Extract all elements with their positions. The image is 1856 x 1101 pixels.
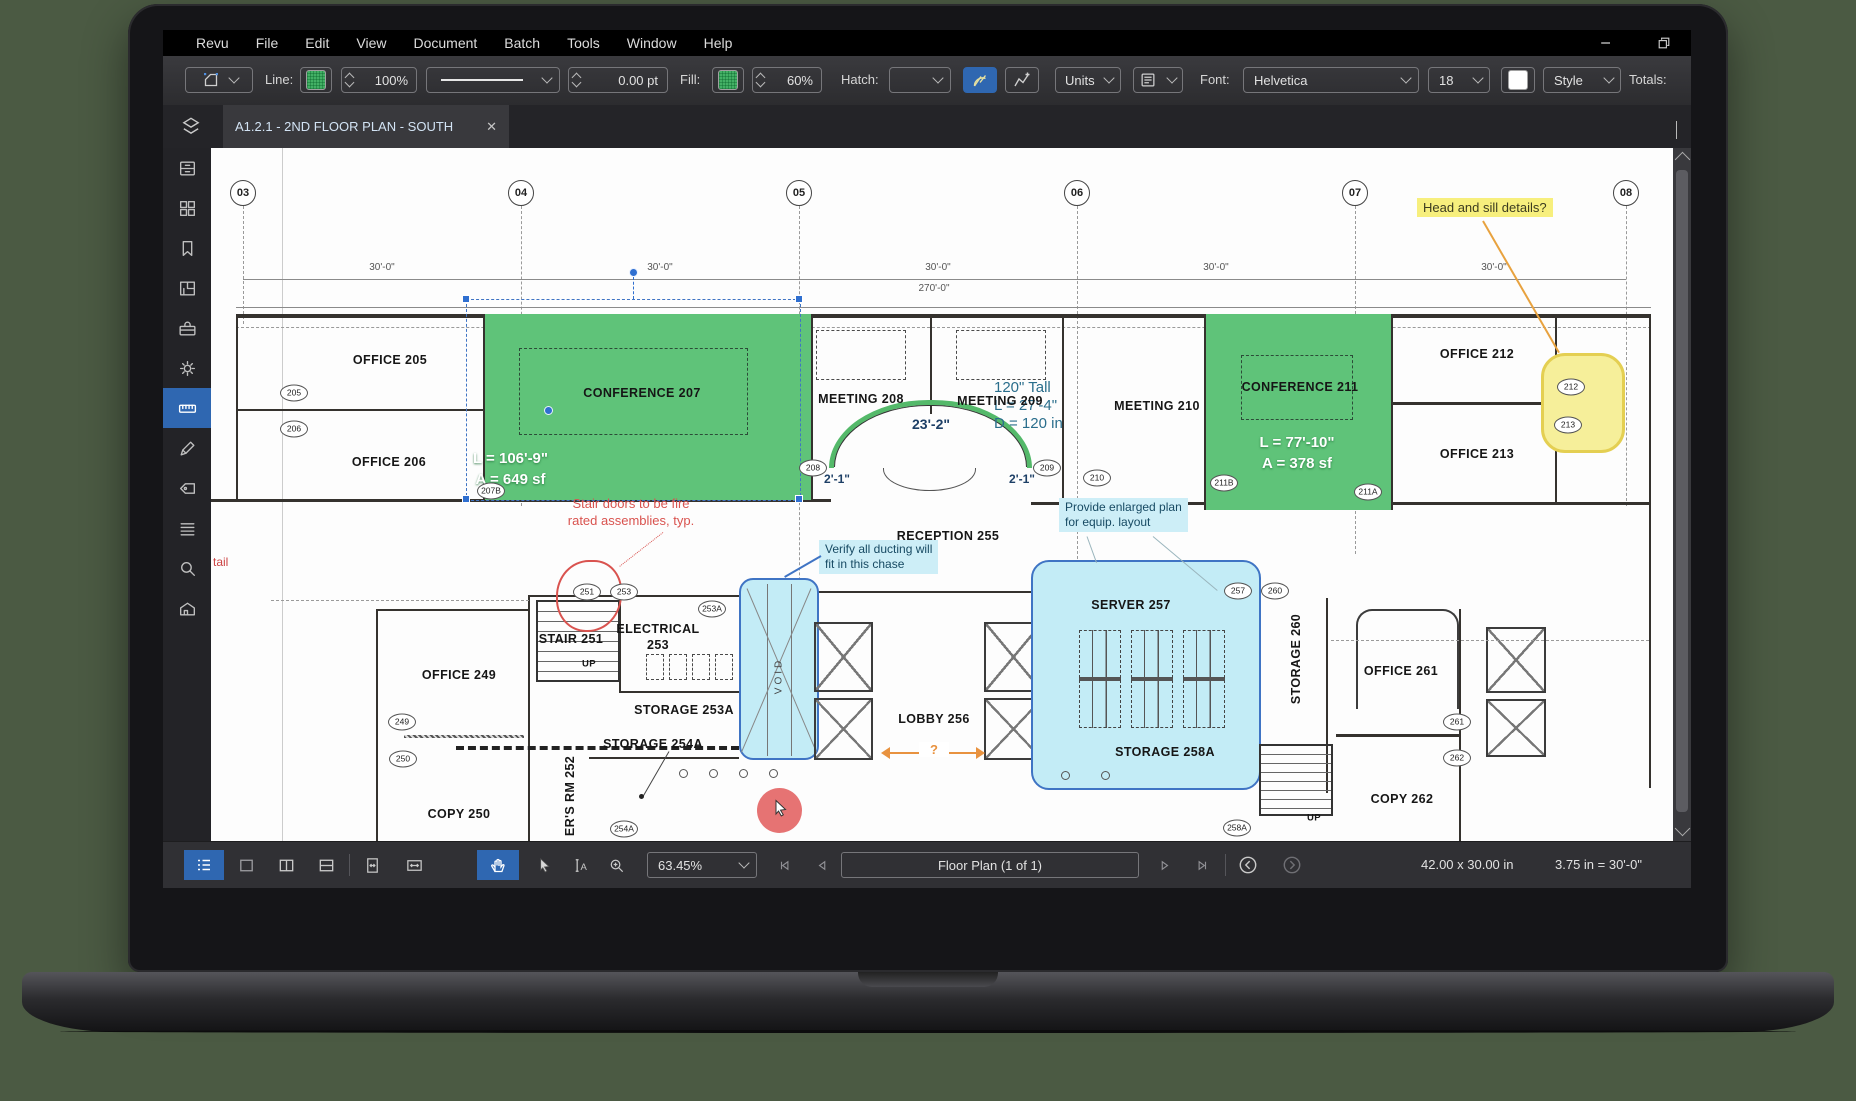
- style-value: Style: [1554, 73, 1583, 88]
- room-label: OFFICE 213: [1440, 447, 1514, 461]
- circle-tag: 210: [1083, 470, 1111, 487]
- search-icon: [177, 558, 198, 579]
- stepper-arrows-icon: [346, 74, 353, 86]
- note-line: fit in this chase: [825, 557, 932, 572]
- sidebar-item-spaces[interactable]: [163, 268, 211, 308]
- plumbing-fixture: [1101, 771, 1110, 780]
- fill-color-swatch: [718, 70, 738, 90]
- room-label: CONFERENCE 207: [583, 386, 700, 400]
- grid-line: [1626, 206, 1627, 506]
- arrow-left-icon: [881, 747, 890, 759]
- line-opacity-stepper[interactable]: 100%: [341, 67, 417, 93]
- room-label: OFFICE 249: [422, 668, 496, 682]
- chase-line: [767, 584, 768, 756]
- hatch-label: Hatch:: [841, 66, 879, 94]
- chevron-down-icon: [1472, 72, 1483, 83]
- next-page-button[interactable]: [1151, 850, 1177, 880]
- circle-tag: 250: [389, 751, 417, 768]
- mouse-cursor: [771, 798, 791, 818]
- circle-tag: 260: [1261, 583, 1289, 600]
- sidebar-item-bookmarks[interactable]: [163, 228, 211, 268]
- overall-dimension: 270'-0": [899, 283, 969, 294]
- split-horizontal-icon: [317, 856, 336, 875]
- room-label: STORAGE 260: [1289, 614, 1303, 704]
- selection-outline: [466, 299, 801, 501]
- chevron-down-icon: [1103, 72, 1114, 83]
- text-color-button[interactable]: [1501, 67, 1535, 93]
- circle-tag: 262: [1443, 750, 1471, 767]
- properties-toolbar: Line: 100% 0.00 pt Fill: 60% Hatch: Uni: [163, 56, 1691, 106]
- room-label: OFFICE 206: [352, 455, 426, 469]
- line-width-stepper[interactable]: 0.00 pt: [568, 67, 668, 93]
- room-label: OFFICE 205: [353, 353, 427, 367]
- totals-label: Totals:: [1629, 66, 1667, 94]
- fill-color-button[interactable]: [712, 67, 744, 93]
- first-page-button[interactable]: [771, 850, 797, 880]
- dynamic-fill-icon: [970, 70, 990, 90]
- room-label: COPY 250: [428, 807, 491, 821]
- text-color-swatch: [1508, 70, 1528, 90]
- font-value: Helvetica: [1254, 73, 1307, 88]
- fill-opacity-stepper[interactable]: 60%: [752, 67, 822, 93]
- room-label: UP: [1307, 813, 1321, 824]
- caption-list-icon: [1139, 71, 1157, 89]
- room-label: STORAGE 258A: [1115, 745, 1215, 759]
- sidebar-item-thumbnails[interactable]: [163, 188, 211, 228]
- elevator-shaft: [1486, 699, 1546, 757]
- font-label: Font:: [1200, 66, 1230, 94]
- fill-label: Fill:: [680, 66, 700, 94]
- hatch-dropdown[interactable]: [889, 67, 951, 93]
- note-line: Verify all ducting will: [825, 542, 932, 557]
- measure-tool-button[interactable]: [1005, 67, 1039, 93]
- laptop-base-edge: [60, 1030, 1796, 1033]
- centerline: [1331, 640, 1649, 641]
- menu-item-help[interactable]: Help: [704, 35, 733, 51]
- room-label: ELECTRICAL: [616, 622, 699, 636]
- select-text-button[interactable]: A: [563, 850, 597, 880]
- restore-icon: [1656, 35, 1672, 51]
- chevron-down-icon: [228, 72, 239, 83]
- bay-dimension: 30'-0": [1186, 262, 1246, 273]
- laptop-lid-notch: [858, 972, 998, 987]
- spaces-icon: [177, 278, 198, 299]
- room-label: COPY 262: [1371, 792, 1434, 806]
- toolbox-icon: [177, 318, 198, 339]
- menu-item-edit[interactable]: Edit: [305, 35, 329, 51]
- measurement-readout-211: L = 77'-10" A = 378 sf: [1227, 432, 1367, 474]
- leader-line: [1482, 221, 1560, 354]
- room-label: LOBBY 256: [898, 712, 969, 726]
- chevron-down-icon: [1166, 72, 1177, 83]
- readout-line: D = 120 in: [994, 415, 1063, 433]
- note-line: for equip. layout: [1065, 515, 1182, 530]
- sidebar-item-tags[interactable]: [163, 468, 211, 508]
- wall: [621, 691, 741, 693]
- equipment: [669, 654, 687, 680]
- centerline: [271, 600, 529, 601]
- plumbing-fixture: [739, 769, 748, 778]
- font-size-dropdown[interactable]: 18: [1428, 67, 1490, 93]
- plumbing-fixture: [769, 769, 778, 778]
- question-label: ?: [919, 742, 949, 757]
- polyline-measure-icon: [1012, 70, 1032, 90]
- circle-tag: 212: [1557, 379, 1585, 396]
- leader-dot: [639, 794, 644, 799]
- grid-bubble-04: 04: [508, 180, 534, 206]
- sidebar-item-sets[interactable]: [163, 508, 211, 548]
- divider: [1225, 854, 1226, 876]
- single-pane-icon: [237, 856, 256, 875]
- elevator-shaft: [1486, 627, 1546, 693]
- circle-tag: 205: [280, 385, 308, 402]
- previous-view-icon: [1237, 854, 1259, 876]
- circle-tag: 208: [799, 460, 827, 477]
- menu-items: RevuFileEditViewDocumentBatchToolsWindow…: [163, 35, 759, 51]
- page-label: Floor Plan (1 of 1): [938, 858, 1042, 873]
- wall: [1393, 402, 1556, 405]
- bay-dimension: 30'-0": [630, 262, 690, 273]
- measurements-icon: [177, 398, 198, 419]
- text-markup-yellow[interactable]: Head and sill details?: [1417, 198, 1553, 217]
- document-tab-bar: A1.2.1 - 2ND FLOOR PLAN - SOUTH ✕: [163, 105, 1691, 149]
- menu-item-view[interactable]: View: [356, 35, 386, 51]
- app-window: RevuFileEditViewDocumentBatchToolsWindow…: [163, 30, 1691, 888]
- circle-tag: 211A: [1354, 484, 1382, 501]
- fit-page-button[interactable]: [355, 850, 389, 880]
- server-rack: [1131, 630, 1173, 728]
- previous-view-button[interactable]: [1231, 850, 1265, 880]
- zoom-tool-button[interactable]: [599, 850, 633, 880]
- markups-list-button[interactable]: [184, 850, 224, 880]
- circle-tag: 254A: [610, 821, 638, 838]
- bay-dimension: 30'-0": [352, 262, 412, 273]
- last-page-button[interactable]: [1189, 850, 1215, 880]
- chevron-down-icon: [1400, 72, 1411, 83]
- line-label: Line:: [265, 66, 293, 94]
- selection-handle[interactable]: [462, 295, 470, 303]
- grid-bubble-08: 08: [1613, 180, 1639, 206]
- grid-bubble-03: 03: [230, 180, 256, 206]
- text-markup-duct[interactable]: Verify all ducting will fit in this chas…: [819, 540, 938, 574]
- circle-tag: 258A: [1223, 820, 1251, 837]
- room-label: CONFERENCE 211: [1242, 380, 1359, 394]
- wall: [930, 314, 932, 414]
- vertical-scrollbar[interactable]: [1673, 148, 1691, 842]
- select-tool-button[interactable]: [527, 850, 561, 880]
- wall: [1391, 314, 1393, 510]
- bay-dimension: 30'-0": [1464, 262, 1524, 273]
- chevron-down-icon: [541, 72, 552, 83]
- grid-bubble-07: 07: [1342, 180, 1368, 206]
- tags-icon: [177, 478, 198, 499]
- next-page-icon: [1157, 858, 1172, 873]
- hand-icon: [488, 855, 508, 875]
- sidebar-item-search[interactable]: [163, 548, 211, 588]
- room-label: MEETING 209: [957, 394, 1043, 408]
- units-dropdown[interactable]: Units: [1055, 67, 1121, 93]
- line-color-button[interactable]: [300, 67, 332, 93]
- status-bar: A 63.45% Floor Plan (1 of 1): [163, 841, 1691, 888]
- svg-text:A: A: [580, 861, 587, 872]
- plumbing-fixture: [679, 769, 688, 778]
- chevron-down-icon: [932, 72, 943, 83]
- room-label: ER'S RM 252: [563, 756, 577, 836]
- drawing-canvas[interactable]: tail 030405060708 270'-0" 30'-0"30'-0"30…: [211, 148, 1673, 842]
- wall: [1649, 314, 1651, 788]
- previous-page-icon: [815, 858, 830, 873]
- clipped-annotation-text: tail: [213, 555, 228, 569]
- circle-tag: 249: [388, 714, 416, 731]
- zoom-icon: [607, 856, 626, 875]
- scrollbar-thumb[interactable]: [1676, 170, 1688, 812]
- grid-bubble-05: 05: [786, 180, 812, 206]
- menu-bar: RevuFileEditViewDocumentBatchToolsWindow…: [163, 30, 1691, 56]
- sheet-border: [282, 148, 283, 842]
- scroll-down-icon[interactable]: [1675, 821, 1691, 837]
- line-width-value: 0.00 pt: [618, 73, 658, 88]
- dimension-line: [243, 279, 1626, 280]
- length-value: L = 77'-10": [1227, 432, 1367, 453]
- chase-line: [791, 584, 792, 756]
- thumbnails-icon: [177, 198, 198, 219]
- room-label: MEETING 210: [1114, 399, 1200, 413]
- text-markup-equip[interactable]: Provide enlarged plan for equip. layout: [1059, 498, 1188, 532]
- red-note-line: rated assemblies, typ.: [546, 512, 716, 529]
- wall: [376, 609, 378, 842]
- plumbing-fixture: [1061, 771, 1070, 780]
- wall: [376, 609, 529, 611]
- split-horizontal-button[interactable]: [309, 850, 343, 880]
- model-icon: [177, 598, 198, 619]
- stairs: [1259, 744, 1333, 816]
- minimize-button[interactable]: [1595, 33, 1617, 53]
- selection-handle[interactable]: [795, 295, 803, 303]
- fit-width-button[interactable]: [397, 850, 431, 880]
- drawing-scale: 3.75 in = 30'-0": [1555, 857, 1642, 872]
- document-size: 42.00 x 30.00 in: [1421, 857, 1514, 872]
- select-text-icon: A: [571, 856, 590, 875]
- control-point[interactable]: [629, 268, 638, 277]
- sidebar-item-markup[interactable]: [163, 428, 211, 468]
- caption-options-dropdown[interactable]: [1133, 67, 1183, 93]
- room-label: STORAGE 254A: [603, 737, 703, 751]
- text-markup-red[interactable]: Stair doors to be fire rated assemblies,…: [546, 495, 716, 529]
- circle-tag: 213: [1554, 417, 1582, 434]
- sidebar-item-measurements[interactable]: [163, 388, 211, 428]
- font-dropdown[interactable]: Helvetica: [1243, 67, 1419, 93]
- shape-style-icon: [200, 70, 222, 90]
- area-value: A = 378 sf: [1227, 453, 1367, 474]
- stepper-arrows-icon: [573, 74, 580, 86]
- circle-tag: 251: [573, 584, 601, 601]
- office-wall: [1356, 609, 1459, 709]
- yellow-cloud-markup[interactable]: [1541, 353, 1625, 453]
- fit-width-icon: [405, 856, 424, 875]
- next-view-button[interactable]: [1275, 850, 1309, 880]
- sidebar-item-settings[interactable]: [163, 348, 211, 388]
- wall: [1336, 734, 1461, 737]
- room-label: STAIR 251: [539, 632, 604, 646]
- fill-opacity-value: 60%: [787, 73, 813, 88]
- leader-line: [619, 532, 663, 567]
- markups-list-icon: [194, 855, 214, 875]
- cursor-icon: [535, 856, 554, 875]
- left-panel-rail: [163, 148, 211, 842]
- single-page-view-button[interactable]: [229, 850, 263, 880]
- elevator-shaft: [814, 698, 873, 760]
- casework: [816, 330, 906, 380]
- tab-list-chevron[interactable]: [1676, 121, 1677, 139]
- chevron-down-icon: [1603, 72, 1614, 83]
- sets-icon: [177, 518, 198, 539]
- layers-icon[interactable]: [180, 115, 202, 137]
- line-color-swatch: [306, 70, 326, 90]
- menu-item-batch[interactable]: Batch: [504, 35, 540, 51]
- style-dropdown[interactable]: Style: [1543, 67, 1621, 93]
- circle-tag: 253A: [698, 601, 726, 618]
- control-point[interactable]: [544, 406, 553, 415]
- line-style-dropdown[interactable]: [426, 67, 560, 93]
- room-label: OFFICE 212: [1440, 347, 1514, 361]
- close-icon[interactable]: ✕: [486, 119, 497, 135]
- room-label: RECEPTION 255: [897, 529, 999, 543]
- line-opacity-value: 100%: [375, 73, 408, 88]
- settings-icon: [177, 358, 198, 379]
- room-label: VOID: [774, 658, 785, 694]
- pan-tool-button[interactable]: [477, 850, 519, 880]
- room-label: OFFICE 261: [1364, 664, 1438, 678]
- elevator-shaft: [814, 622, 873, 692]
- grid-bubble-06: 06: [1064, 180, 1090, 206]
- server-rack: [1079, 630, 1121, 728]
- circle-tag: 211B: [1210, 475, 1238, 492]
- red-note-line: Stair doors to be fire: [546, 495, 716, 512]
- control-leader: [633, 277, 634, 299]
- circle-tag: 206: [280, 421, 308, 438]
- arrow-right-icon: [976, 747, 985, 759]
- wall: [1204, 314, 1206, 510]
- restore-button[interactable]: [1653, 33, 1675, 53]
- chevron-down-icon: [738, 857, 749, 868]
- split-vertical-icon: [277, 856, 296, 875]
- bookmarks-icon: [177, 238, 198, 259]
- circle-tag: 209: [1033, 460, 1061, 477]
- chevron-down-icon: [1676, 121, 1677, 139]
- circle-tag: 253: [610, 584, 638, 601]
- bay-dimension: 30'-0": [908, 262, 968, 273]
- circle-tag: 261: [1443, 714, 1471, 731]
- sidebar-item-model[interactable]: [163, 588, 211, 628]
- equipment: [646, 654, 664, 680]
- circle-tag: 257: [1224, 583, 1252, 600]
- menu-item-window[interactable]: Window: [627, 35, 677, 51]
- fit-page-icon: [363, 856, 382, 875]
- tab-floor-plan[interactable]: A1.2.1 - 2ND FLOOR PLAN - SOUTH ✕: [223, 105, 509, 148]
- next-view-icon: [1281, 854, 1303, 876]
- room-label: SERVER 257: [1091, 598, 1171, 612]
- wall: [528, 595, 530, 842]
- wall: [236, 307, 1651, 308]
- zoom-level-value: 63.45%: [658, 858, 702, 873]
- menu-item-file[interactable]: File: [256, 35, 279, 51]
- server-rack: [1183, 630, 1225, 728]
- equipment: [692, 654, 710, 680]
- wall: [817, 591, 1033, 593]
- last-page-icon: [1195, 858, 1210, 873]
- scroll-up-icon[interactable]: [1675, 152, 1691, 168]
- room-label: UP: [582, 659, 596, 670]
- file-access-icon: [177, 158, 198, 179]
- leader-line: [1087, 536, 1098, 563]
- centerline: [236, 327, 1651, 328]
- room-label: 253: [647, 638, 669, 652]
- note-line: Provide enlarged plan: [1065, 500, 1182, 515]
- solid-line-icon: [439, 76, 525, 84]
- first-page-icon: [777, 858, 792, 873]
- circle-tag: 207B: [477, 483, 505, 500]
- split-vertical-button[interactable]: [269, 850, 303, 880]
- casework: [956, 330, 1046, 380]
- zoom-level-dropdown[interactable]: 63.45%: [647, 852, 757, 878]
- room-label: MEETING 208: [818, 392, 904, 406]
- reception-desk: [883, 468, 976, 491]
- wall: [236, 314, 238, 502]
- sidebar-item-file-access[interactable]: [163, 148, 211, 188]
- main-area: tail 030405060708 270'-0" 30'-0"30'-0"30…: [163, 148, 1691, 842]
- tool-style-dropdown[interactable]: [185, 67, 253, 93]
- menu-item-document[interactable]: Document: [413, 35, 477, 51]
- room-label: STORAGE 253A: [634, 703, 734, 717]
- plumbing-fixture: [709, 769, 718, 778]
- units-value: Units: [1065, 73, 1095, 88]
- hatched-wall: [404, 735, 524, 738]
- sidebar-item-toolbox[interactable]: [163, 308, 211, 348]
- page-label-box[interactable]: Floor Plan (1 of 1): [841, 852, 1139, 878]
- font-size-value: 18: [1439, 73, 1453, 88]
- dynamic-fill-tool-button[interactable]: [963, 67, 997, 93]
- selection-handle[interactable]: [462, 495, 470, 503]
- equipment: [715, 654, 733, 680]
- menu-item-tools[interactable]: Tools: [567, 35, 600, 51]
- markup-icon: [177, 438, 198, 459]
- wall: [238, 409, 483, 411]
- divider: [349, 854, 350, 876]
- selection-handle[interactable]: [795, 495, 803, 503]
- leader-line: [784, 555, 821, 578]
- exterior-wall: [236, 314, 1651, 318]
- minimize-icon: [1598, 35, 1614, 51]
- arc-dimension: 23'-2": [891, 416, 971, 432]
- menu-item-revu[interactable]: Revu: [196, 35, 229, 51]
- previous-page-button[interactable]: [809, 850, 835, 880]
- stepper-arrows-icon: [757, 74, 764, 86]
- tab-title: A1.2.1 - 2ND FLOOR PLAN - SOUTH: [235, 119, 453, 134]
